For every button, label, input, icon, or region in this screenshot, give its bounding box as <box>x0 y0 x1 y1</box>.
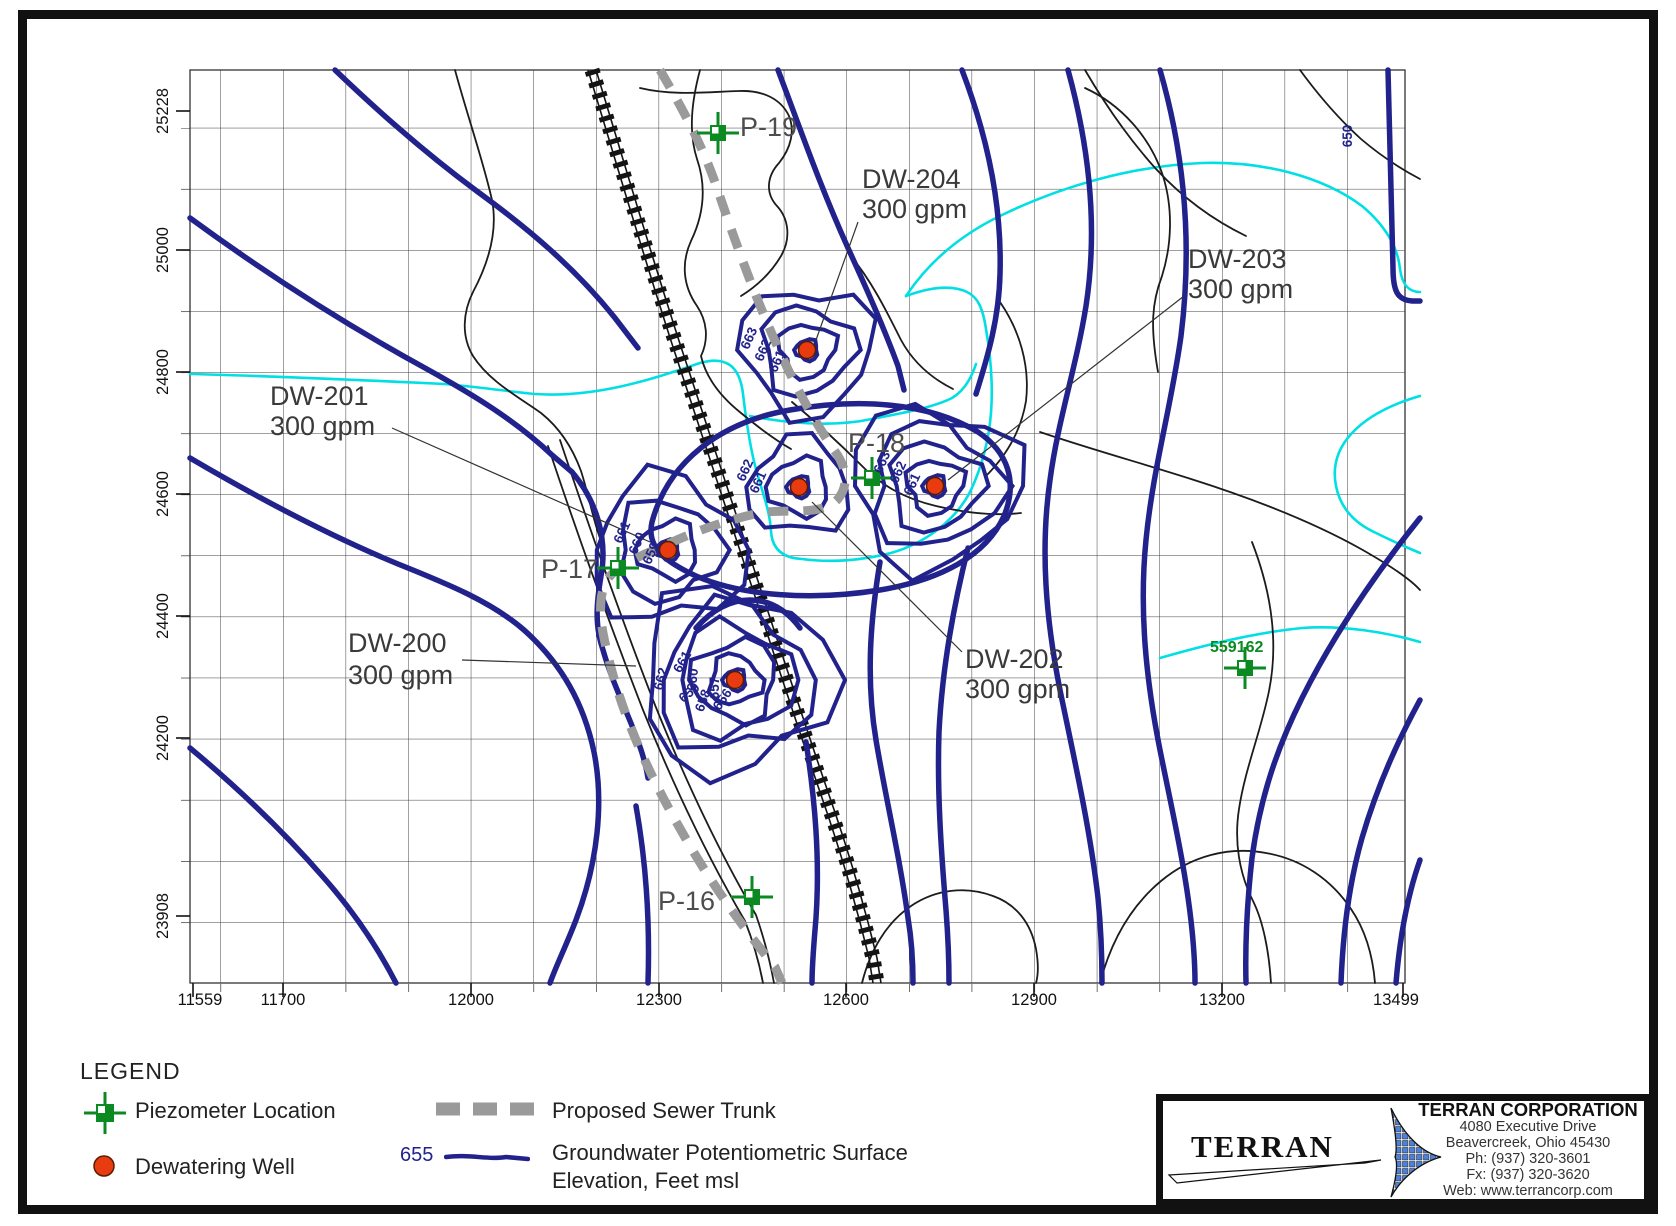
dewatering-well-marker <box>727 672 744 689</box>
terran-address2: Beavercreek, Ohio 45430 <box>1418 1136 1638 1152</box>
y-axis-label: 24200 <box>154 715 172 761</box>
dewatering-well-marker <box>660 542 677 559</box>
callout-dw200-rate: 300 gpm <box>348 660 453 690</box>
x-axis-label: 13499 <box>1373 991 1419 1009</box>
terran-address-block: TERRAN CORPORATION 4080 Executive Drive … <box>1418 1100 1644 1200</box>
x-axis-label: 13200 <box>1199 991 1245 1009</box>
terran-phone: Ph: (937) 320-3601 <box>1418 1152 1638 1168</box>
legend-sewer-label: Proposed Sewer Trunk <box>552 1098 776 1124</box>
sewer-trunk-legend-icon <box>436 1101 536 1117</box>
piezometer-legend-icon <box>82 1090 128 1136</box>
y-axis-label: 24600 <box>154 471 172 517</box>
x-axis-label: 11559 <box>178 991 223 1009</box>
legend-gw-contour-value: 655 <box>400 1144 433 1167</box>
callout-dw203-rate: 300 gpm <box>1188 274 1293 304</box>
dewatering-well-marker <box>791 479 808 496</box>
callout-p18: P-18 <box>848 428 905 458</box>
legend-piezometer-label: Piezometer Location <box>135 1098 336 1124</box>
dewatering-well-marker <box>927 478 944 495</box>
callout-p19: P-19 <box>740 112 797 142</box>
x-axis-label: 12000 <box>448 991 494 1009</box>
callout-dw201-rate: 300 gpm <box>270 411 375 441</box>
callout-station-559162: 559162 <box>1210 639 1263 656</box>
terran-address1: 4080 Executive Drive <box>1418 1120 1638 1136</box>
y-minor-ticks <box>181 128 190 983</box>
terran-logo-underline <box>1165 1159 1405 1185</box>
x-axis-label: 12600 <box>823 991 869 1009</box>
callout-dw202-name: DW-202 <box>965 644 1064 674</box>
terran-company-name: TERRAN CORPORATION <box>1418 1100 1638 1120</box>
x-axis-label: 11700 <box>261 991 306 1009</box>
legend-gw-label-line2: Elevation, Feet msl <box>552 1168 739 1194</box>
callout-dw202-rate: 300 gpm <box>965 674 1070 704</box>
legend-gw-label-line1: Groundwater Potentiometric Surface <box>552 1140 908 1166</box>
x-axis-label: 12900 <box>1011 991 1057 1009</box>
contour-elevation-label: 650 <box>1340 125 1355 148</box>
legend-well-label: Dewatering Well <box>135 1154 295 1180</box>
callout-dw204-rate: 300 gpm <box>862 194 967 224</box>
callout-dw200-name: DW-200 <box>348 628 447 658</box>
dewatering-well-legend-icon <box>90 1152 118 1180</box>
callout-dw201-name: DW-201 <box>270 381 369 411</box>
callout-dw203-name: DW-203 <box>1188 244 1287 274</box>
callout-dw204-name: DW-204 <box>862 164 961 194</box>
terran-web: Web: www.terrancorp.com <box>1418 1184 1638 1200</box>
gw-contour-legend-icon <box>444 1148 530 1166</box>
callout-p16: P-16 <box>658 886 715 916</box>
dewatering-well-marker <box>799 342 816 359</box>
x-axis-labels: 11559 11700 12000 12300 12600 12900 1320… <box>178 991 1419 1009</box>
terran-logo-arrow-icon <box>1381 1105 1443 1201</box>
y-axis-labels: 25228 25000 24800 24600 24400 24200 2390… <box>154 88 172 939</box>
terran-fax: Fx: (937) 320-3620 <box>1418 1168 1638 1184</box>
y-axis-label: 24800 <box>154 349 172 395</box>
y-axis-label: 25000 <box>154 227 172 273</box>
site-map-page: 6636626616626616636626616616606596616606… <box>0 0 1676 1226</box>
y-axis-label: 23908 <box>154 893 172 939</box>
terran-logo: TERRAN <box>1163 1101 1418 1199</box>
y-axis-label: 25228 <box>154 88 172 134</box>
terran-title-box: TERRAN TERRAN CORPORATION 4080 Executive… <box>1156 1094 1651 1206</box>
y-axis-label: 24400 <box>154 593 172 639</box>
callout-p17: P-17 <box>541 554 598 584</box>
x-axis-label: 12300 <box>636 991 682 1009</box>
legend-title: LEGEND <box>80 1058 181 1085</box>
groundwater-map: 6636626616626616636626616616606596616606… <box>0 0 1676 1226</box>
